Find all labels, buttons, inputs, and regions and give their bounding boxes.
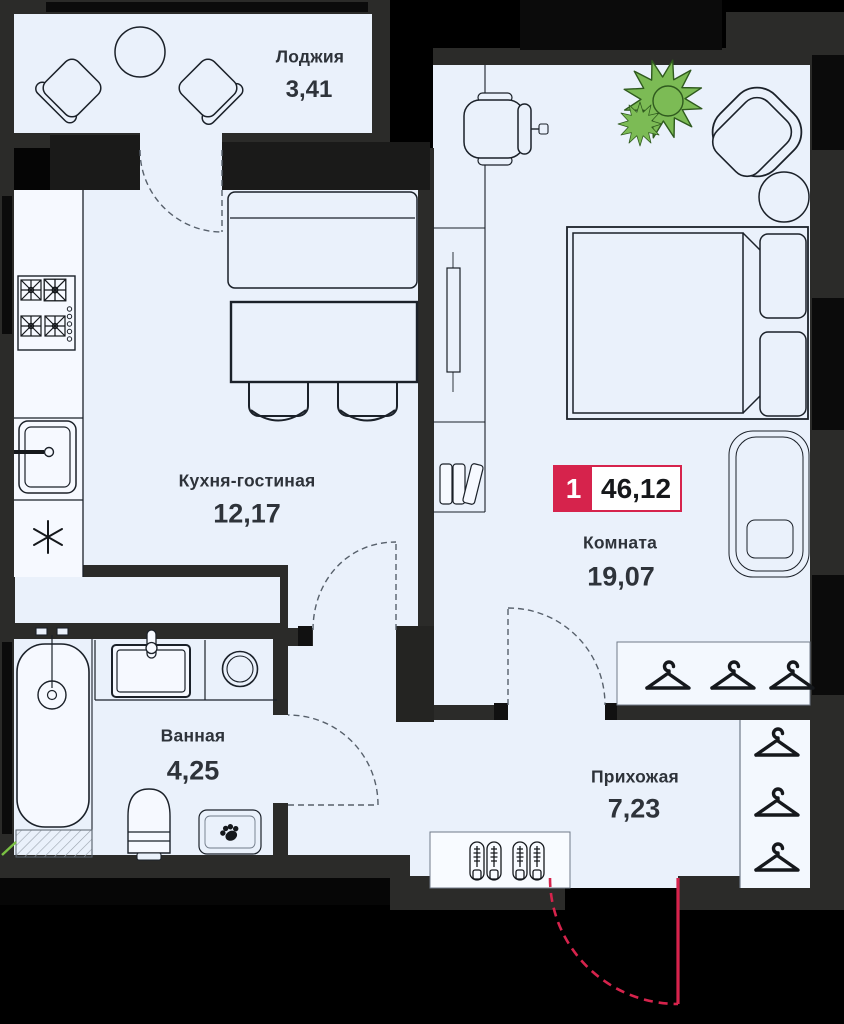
wardrobe-icon	[617, 642, 813, 705]
pillow	[760, 332, 806, 416]
entrance-door-swing	[550, 878, 678, 1004]
closet-icon	[740, 720, 810, 888]
right-window-3	[812, 575, 844, 695]
total-area-badge: 1 46,12	[553, 465, 682, 512]
stove-icon	[18, 276, 75, 350]
pillow	[760, 234, 806, 318]
blanket	[573, 233, 743, 413]
sofa-icon	[228, 192, 417, 288]
total-area-value: 46,12	[592, 467, 680, 510]
left-window-2	[2, 642, 12, 834]
room-label-room: Комната	[583, 533, 657, 554]
room-area-room: 19,07	[587, 562, 655, 593]
right-window-1	[812, 55, 844, 150]
shaft-inner	[15, 577, 280, 623]
right-window-2	[812, 298, 844, 430]
room-top-window	[520, 0, 722, 50]
loggia-window	[46, 2, 368, 12]
loggia-table-icon	[115, 27, 165, 77]
room-label-hallway: Прихожая	[591, 767, 679, 788]
left-window-1	[2, 196, 12, 334]
room-label-bathroom: Ванная	[161, 726, 226, 747]
pillar	[396, 626, 434, 722]
bathtub-icon	[17, 628, 89, 827]
floor-plan-drawing	[0, 0, 844, 1024]
room-area-bathroom: 4,25	[167, 756, 220, 787]
kitchen-sink-icon	[14, 421, 76, 493]
room-area-kitchen: 12,17	[213, 499, 281, 530]
room-label-kitchen: Кухня-гостиная	[179, 471, 316, 492]
bed-icon	[567, 227, 808, 419]
crib-icon	[729, 431, 809, 577]
toilet-icon	[128, 789, 170, 860]
room-area-hallway: 7,23	[608, 794, 661, 825]
shower-mat	[16, 830, 92, 857]
unit-number: 1	[555, 467, 592, 510]
entrance-door	[550, 878, 678, 1004]
room-area-loggia: 3,41	[286, 76, 333, 104]
floor-plan: Лоджия 3,41 Кухня-гостиная 12,17 Комната…	[0, 0, 844, 1024]
ironing-board-icon	[447, 252, 460, 392]
room-label-loggia: Лоджия	[276, 47, 344, 68]
dining-table-icon	[231, 302, 417, 382]
side-table-icon	[759, 172, 809, 222]
